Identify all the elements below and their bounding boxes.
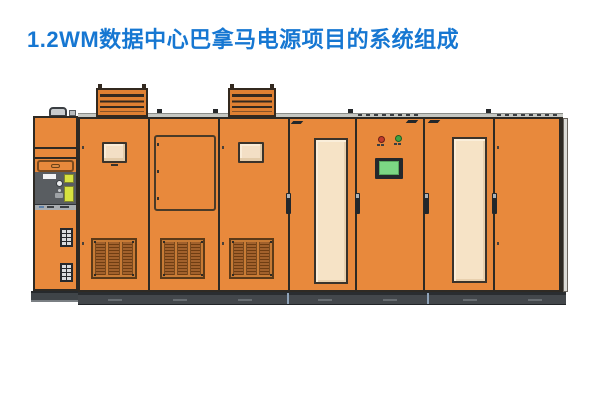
roof-vent-box-2 [228,88,276,117]
hinge-dot [157,143,159,146]
door-handle [424,193,429,214]
cabinet-row [78,117,563,292]
plinth-base [78,292,566,305]
drawer-slot [51,164,60,168]
hinge-dot [82,146,84,149]
slide-canvas: 1.2WM数据中心巴拿马电源项目的系统组成 [0,0,600,404]
indicator-label-mark [394,143,401,145]
panel-seam [35,147,76,149]
vent-louvers [232,94,272,112]
hinge-dot [157,170,159,173]
vent-louvers [100,94,144,112]
door-outline [154,135,216,211]
vent-cap [230,84,234,88]
cabinet-5 [290,119,357,290]
viewing-window [102,142,127,163]
door-handle [355,193,360,214]
cabinet-1 [33,116,78,291]
base-mark [463,299,477,301]
hmi-screen [375,158,403,179]
roof-nub [213,109,218,113]
base-mark [173,299,187,301]
vent-strip [35,205,76,210]
drawer-front [37,160,74,172]
cabinet-side-panel [563,118,568,292]
cabinet-1-plinth [31,291,80,302]
roof-nub [348,109,353,113]
roof-bolt-row [358,114,420,116]
vent-cap [142,84,146,88]
corner-latch [406,120,419,123]
bottom-grille [229,238,274,279]
door-handle [492,193,497,214]
indicator-label-mark [377,144,384,146]
red-indicator [378,136,385,143]
base-mark [383,299,397,301]
base-mark [238,299,252,301]
screen-glass [379,161,399,175]
vent-cap [270,84,274,88]
bottom-grille [91,238,137,279]
strip-mark [39,206,44,208]
terminal-block [60,228,73,247]
hinge-dot [497,242,499,245]
strip-mark [47,206,54,208]
green-indicator [395,135,402,142]
corner-latch [291,121,304,124]
base-joint [287,293,289,304]
filter-panel [452,137,487,283]
cabinet-7 [425,119,495,290]
window-latch [111,164,118,166]
yellow-label [64,174,74,183]
corner-latch [428,120,441,123]
panel-nameplate [43,174,56,179]
base-joint [427,293,429,304]
roof-bolt-row [497,114,561,116]
hinge-dot [222,146,224,149]
cabinet-3 [150,119,220,290]
hinge-dot [82,242,84,245]
base-mark [318,299,332,301]
page-title: 1.2WM数据中心巴拿马电源项目的系统组成 [27,22,459,54]
cabinet-4 [220,119,290,290]
cabinet-6 [357,119,425,290]
roof-vent-box-1 [96,88,148,117]
roof-nub [157,109,162,113]
bottom-grille [160,238,205,279]
hinge-dot [157,197,159,200]
yellow-label [64,186,74,202]
indicator-dot [58,189,61,192]
control-knob [56,180,63,187]
panel-seam [35,157,76,159]
hinge-dot [497,146,499,149]
vent-cap [98,84,102,88]
roof-nub [486,109,491,113]
cabinet-2 [80,119,150,290]
base-mark [108,299,122,301]
cabinet-8 [495,119,561,290]
base-mark [528,299,542,301]
keypad-block [55,193,63,198]
terminal-block [60,263,73,282]
strip-mark [60,206,69,208]
control-panel [35,172,76,205]
door-handle [286,193,291,214]
filter-panel [314,138,348,284]
viewing-window [238,142,264,163]
hinge-dot [222,242,224,245]
